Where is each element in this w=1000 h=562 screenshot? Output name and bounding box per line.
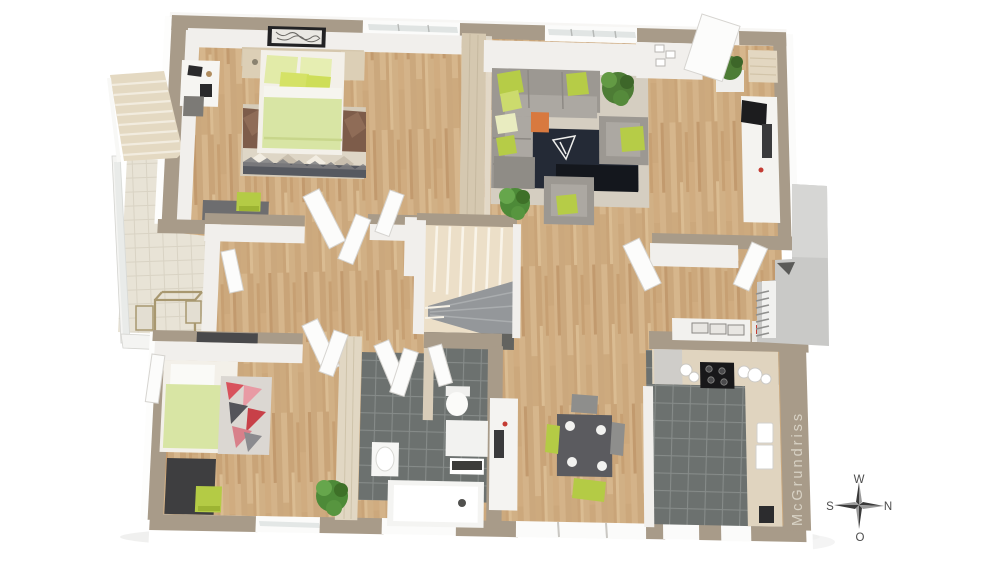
svg-text:O: O bbox=[856, 532, 865, 544]
svg-text:N: N bbox=[884, 501, 892, 513]
svg-text:S: S bbox=[826, 501, 834, 513]
svg-text:W: W bbox=[854, 474, 865, 486]
svg-text:McGrundriss: McGrundriss bbox=[790, 411, 806, 526]
